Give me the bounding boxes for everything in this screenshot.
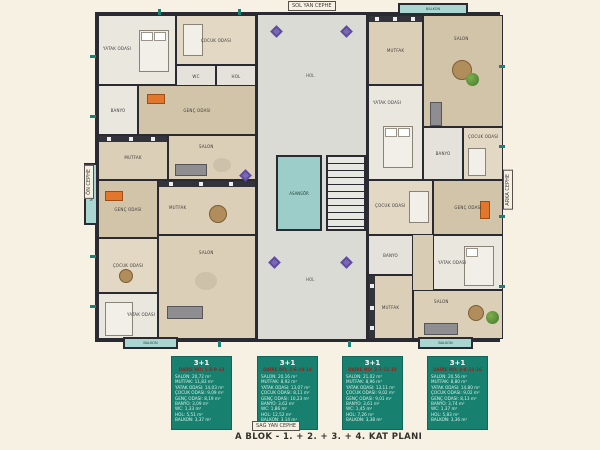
facade-label-bottom: SAĞ YAN CEPHE [252,421,300,431]
dimension-mark [90,305,96,308]
desk [480,201,490,219]
facade-label-left-text: ÖN CEPHE [86,169,92,195]
dimension-mark [90,55,96,58]
dimension-mark [158,9,161,15]
sofa [167,306,203,319]
unit-room-list: SALON: 20,72 m²MUTFAK: 11,83 m²YATAK ODA… [175,374,228,423]
sofa [424,323,458,335]
unit-info-box: 3+1 DAİRE NO: 4-8-12-16 SALON: 20,56 m²M… [427,356,488,430]
room-wc: WC [176,65,216,87]
room-cocuk-odasi: ÇOCUK ODASI [368,180,433,235]
room-banyo: BANYO [368,235,413,275]
pillow [385,128,397,137]
balcony-label: BALKON [143,341,157,345]
room-label: MUTFAK [169,205,186,210]
dimension-mark [90,115,96,118]
room-label: ÇOCUK ODASI [468,134,498,139]
floor-plan: HOL HOL ASANSÖR YATAK ODASI ÇOCUK ODASI … [95,12,500,342]
unit-room-list: SALON: 20,56 m²MUTFAK: 8,80 m²YATAK ODAS… [431,374,484,423]
unit-room-row: ÇOCUK ODASI: 9,02 m² [431,390,484,395]
balcony-label: BALKON [438,341,452,345]
bed [409,191,429,223]
room-yatak-odasi: YATAK ODASI [98,15,176,85]
room-label: YATAK ODASI [103,46,131,51]
room-label: SALON [454,36,469,41]
unit-room-row: BALKON: 3,37 m² [175,417,228,422]
room-label: YATAK ODASI [438,260,466,265]
room-label: ÇOCUK ODASI [113,263,143,268]
unit-daire-no: DAİRE NO: 4-8-12-16 [431,367,484,372]
sofa [175,164,207,176]
facade-label-top-text: SOL YAN CEPHE [292,3,332,9]
balcony: BALKON [398,3,468,15]
room-genc-odasi: GENÇ ODASI [98,180,158,238]
room-cocuk-odasi: ÇOCUK ODASI [98,238,158,293]
balcony-label: BALKON [426,7,440,11]
dimension-mark [499,145,505,148]
room-yatak-odasi: YATAK ODASI [368,85,423,180]
balcony: BALKON [418,337,473,349]
corridor-hol-label: HOL [306,73,314,78]
plan-caption: A BLOK - 1. + 2. + 3. + 4. KAT PLANI [235,432,422,442]
unit-room-row: BALKON: 3,38 m² [346,417,399,422]
room-label: SALON [199,250,214,255]
room-label: GENÇ ODASI [114,207,141,212]
dimension-mark [238,9,241,15]
dining-table [209,205,227,223]
room-yatak-odasi: YATAK ODASI [433,235,503,290]
room-label: GENÇ ODASI [183,108,210,113]
room-label: BANYO [436,151,451,156]
unit-room-row: ÇOCUK ODASI: 9,09 m² [175,390,228,395]
unit-info-box: 3+1 DAİRE NO: 2-6-10-14 SALON: 20,16 m²M… [257,356,318,430]
room-mutfak: MUTFAK [98,135,168,180]
floor-plan-sheet: SOL YAN CEPHE SAĞ YAN CEPHE ÖN CEPHE ARK… [0,0,600,450]
room-mutfak: MUTFAK [158,180,256,235]
room-label: BANYO [383,253,398,258]
tree [466,73,479,86]
corridor-hol-label: HOL [306,277,314,282]
room-label: MUTFAK [124,155,141,160]
room-label: SALON [434,299,449,304]
facade-label-right-text: ARKA CEPHE [505,174,511,206]
dimension-mark [499,65,505,68]
pillow [154,32,166,41]
room-genc-odasi: GENÇ ODASI [138,85,256,135]
table [119,269,133,283]
facade-label-top: SOL YAN CEPHE [288,1,336,11]
room-label: ÇOCUK ODASI [201,38,231,43]
room-label: ÇOCUK ODASI [375,203,405,208]
desk [147,94,165,104]
bed [468,148,486,176]
elevator-label: ASANSÖR [289,191,309,196]
kitchen-counter [369,276,375,339]
sofa [430,102,442,126]
room-label: MUTFAK [387,48,404,53]
desk [105,191,123,201]
bed [105,302,133,336]
elevator: ASANSÖR [276,155,322,231]
dimension-mark [348,341,351,347]
unit-room-row: ÇOCUK ODASI: 8,11 m² [261,390,314,395]
unit-daire-no: DAİRE NO: 3-7-11-15 [346,367,399,372]
room-yatak-odasi: YATAK ODASI [98,293,158,339]
room-label: GENÇ ODASI [454,205,481,210]
room-label: BANYO [111,108,126,113]
unit-daire-no: DAİRE NO: 2-6-10-14 [261,367,314,372]
unit-room-row: BALKON: 3,36 m² [431,417,484,422]
unit-daire-no: DAİRE NO: 1-5-9-13 [175,367,228,372]
room-label: HOL [232,74,241,79]
facade-label-right: ARKA CEPHE [503,170,513,210]
unit-type: 3+1 [346,359,399,367]
dimension-mark [90,255,96,258]
room-label: YATAK ODASI [127,312,155,317]
room-salon: SALON [423,15,503,127]
stairs [326,155,366,231]
room-genc-odasi: GENÇ ODASI [433,180,503,235]
room-cocuk-odasi: ÇOCUK ODASI [463,127,503,180]
unit-info-box: 3+1 DAİRE NO: 1-5-9-13 SALON: 20,72 m²MU… [171,356,232,430]
rug [195,272,217,290]
unit-info-box: 3+1 DAİRE NO: 3-7-11-15 SALON: 21,02 m²M… [342,356,403,430]
dining-table [468,305,484,321]
unit-type: 3+1 [261,359,314,367]
unit-type: 3+1 [431,359,484,367]
kitchen-counter [99,136,168,142]
kitchen-counter [369,16,423,22]
room-banyo: BANYO [98,85,138,135]
pillow [141,32,153,41]
facade-label-left: ÖN CEPHE [84,165,94,199]
room-mutfak: MUTFAK [368,275,413,339]
room-banyo: BANYO [423,127,463,180]
facade-label-bottom-text: SAĞ YAN CEPHE [256,423,296,429]
unit-room-list: SALON: 20,16 m²MUTFAK: 8,92 m²YATAK ODAS… [261,374,314,423]
balcony: BALKON [123,337,178,349]
room-hol: HOL [216,65,256,87]
room-salon: SALON [158,235,256,339]
rug [213,158,231,172]
room-label: YATAK ODASI [373,100,401,105]
room-cocuk-odasi: ÇOCUK ODASI [176,15,256,65]
room-label: MUTFAK [382,305,399,310]
dimension-mark [218,341,221,347]
unit-room-list: SALON: 21,02 m²MUTFAK: 8,96 m²YATAK ODAS… [346,374,399,423]
dimension-mark [499,285,505,288]
dimension-mark [499,215,505,218]
room-mutfak: MUTFAK [368,15,423,85]
unit-room-row: ÇOCUK ODASI: 9,02 m² [346,390,399,395]
kitchen-counter [159,181,256,187]
unit-type: 3+1 [175,359,228,367]
room-label: WC [192,74,199,79]
pillow [398,128,410,137]
pillow [466,248,478,257]
tree [486,311,499,324]
room-label: SALON [199,144,214,149]
